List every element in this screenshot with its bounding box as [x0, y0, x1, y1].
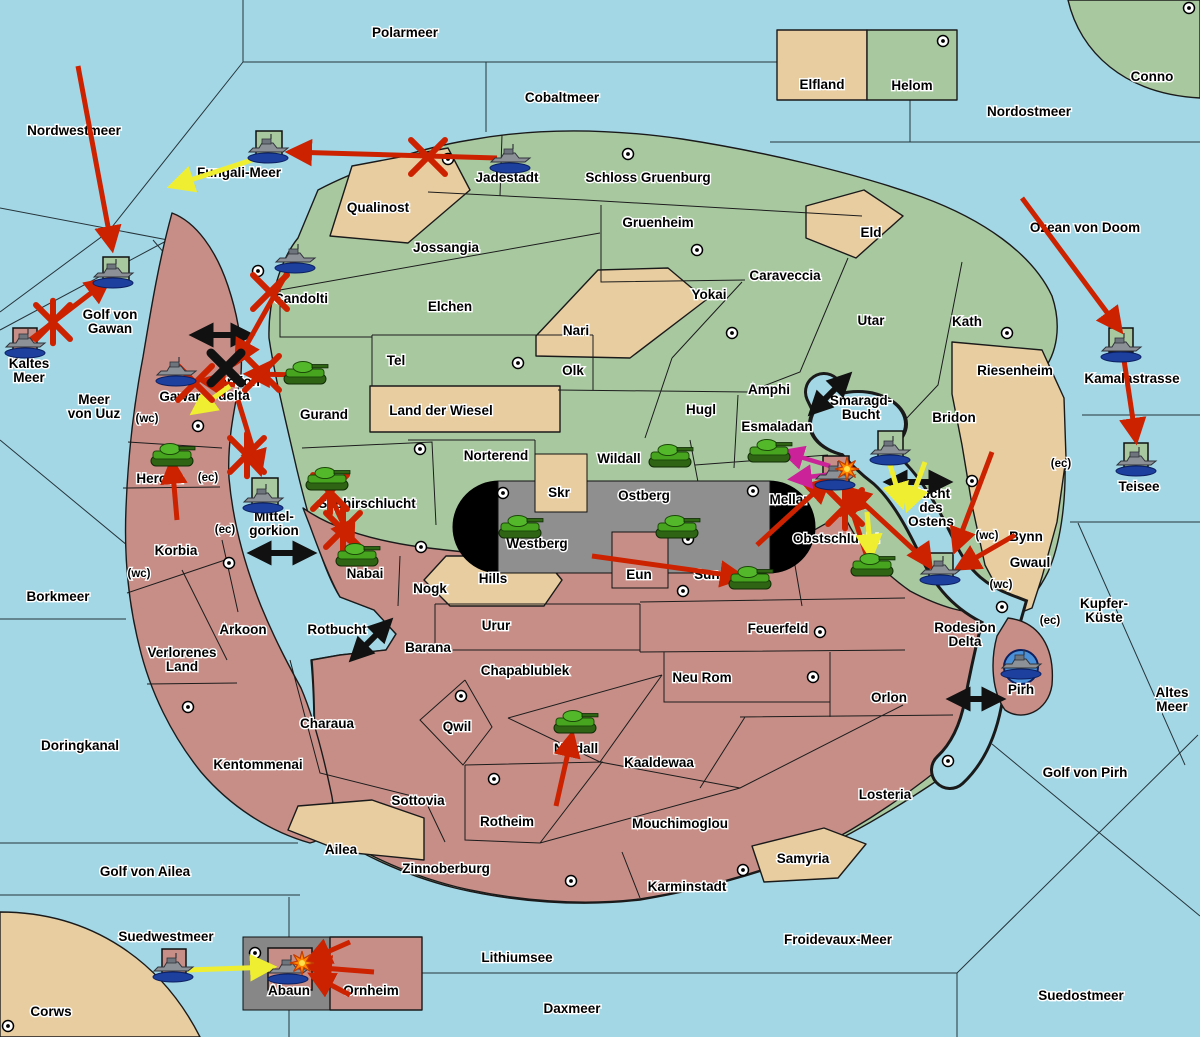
- supply-dot: [224, 558, 235, 569]
- territory-label[interactable]: Esmaladan: [741, 419, 812, 434]
- sea-label: Borkmeer: [26, 589, 90, 604]
- territory-label[interactable]: Land der Wiesel: [389, 403, 492, 418]
- sea-label: Golf von Ailea: [100, 864, 191, 879]
- territory-label[interactable]: Schloss Gruenburg: [585, 170, 710, 185]
- territory-label[interactable]: Helom: [891, 78, 932, 93]
- supply-dot: [250, 948, 261, 959]
- supply-dot: [193, 421, 204, 432]
- supply-dot: [513, 358, 524, 369]
- supply-dot: [1002, 328, 1013, 339]
- skr-square: [535, 454, 587, 512]
- coast-tag-label: (ec): [1040, 615, 1061, 627]
- supply-dot: [416, 542, 427, 553]
- territory-label[interactable]: Nabai: [347, 566, 384, 581]
- yellow-attack-arrow: [188, 967, 272, 970]
- territory-label[interactable]: Amphi: [748, 382, 790, 397]
- territory-label[interactable]: Abaun: [268, 983, 310, 998]
- territory-label[interactable]: Skr: [548, 485, 571, 500]
- supply-dot: [415, 444, 426, 455]
- territory-label[interactable]: Bridon: [932, 410, 976, 425]
- sea-label: Kupfer-Küste: [1080, 596, 1128, 625]
- territory-label[interactable]: Wildall: [597, 451, 640, 466]
- coast-tag-label: (ec): [215, 524, 236, 536]
- sea-label: AltesMeer: [1155, 685, 1188, 714]
- territory-label[interactable]: Ailea: [325, 842, 358, 857]
- territory-label[interactable]: Elchen: [428, 299, 472, 314]
- territory-label[interactable]: Zinnoberburg: [402, 861, 490, 876]
- territory-label[interactable]: Qwil: [443, 719, 472, 734]
- territory-label[interactable]: Ornheim: [343, 983, 399, 998]
- territory-label[interactable]: Karminstadt: [648, 879, 727, 894]
- supply-dot: [623, 149, 634, 160]
- coast-tag-label: (wc): [128, 568, 151, 580]
- territory-label[interactable]: Nari: [563, 323, 589, 338]
- sea-label: Doringkanal: [41, 738, 119, 753]
- sea-label: Rotbucht: [307, 622, 367, 637]
- territory-label[interactable]: Olk: [562, 363, 584, 378]
- supply-dot: [815, 627, 826, 638]
- coast-tag-label: (ec): [1051, 458, 1072, 470]
- sea-label: Nordostmeer: [987, 104, 1072, 119]
- territory-label[interactable]: Yokai: [691, 287, 726, 302]
- sea-label: Nordwestmeer: [27, 123, 122, 138]
- territory-label[interactable]: Kath: [952, 314, 982, 329]
- territory-label[interactable]: Corws: [30, 1004, 71, 1019]
- supply-dot: [489, 774, 500, 785]
- supply-dot: [808, 672, 819, 683]
- supply-dot: [183, 702, 194, 713]
- territory-label[interactable]: Arkoon: [219, 622, 266, 637]
- explosion-marker: [835, 457, 859, 481]
- territory-label[interactable]: Riesenheim: [977, 363, 1053, 378]
- territory-label[interactable]: Neu Rom: [672, 670, 731, 685]
- territory-label[interactable]: Urur: [482, 618, 511, 633]
- supply-dot: [3, 1021, 14, 1032]
- territory-label[interactable]: Gruenheim: [622, 215, 693, 230]
- supply-dot: [997, 602, 1008, 613]
- sea-label: Polarmeer: [372, 25, 439, 40]
- sea-label: KaltesMeer: [9, 356, 50, 385]
- supply-dot: [967, 476, 978, 487]
- territory-label[interactable]: Hugl: [686, 402, 716, 417]
- coast-tag-label: (ec): [198, 472, 219, 484]
- territory-label[interactable]: Barana: [405, 640, 451, 655]
- supply-dot: [1184, 3, 1195, 14]
- territory-label[interactable]: Pirh: [1008, 682, 1034, 697]
- territory-label[interactable]: Ostberg: [618, 488, 670, 503]
- territory-label[interactable]: Elfland: [799, 77, 844, 92]
- territory-label[interactable]: Heronn: [136, 471, 183, 486]
- territory-label[interactable]: Feuerfeld: [748, 621, 809, 636]
- territory-label[interactable]: Hills: [479, 571, 508, 586]
- supply-dot: [678, 586, 689, 597]
- supply-dot: [943, 756, 954, 767]
- territory-label[interactable]: Caraveccia: [749, 268, 821, 283]
- territory-label[interactable]: Sottovia: [391, 793, 445, 808]
- explosion-marker: [290, 951, 314, 975]
- territory-label[interactable]: Tel: [387, 353, 406, 368]
- coast-tag-label: (wc): [136, 413, 159, 425]
- coast-tag-label: (wc): [990, 579, 1013, 591]
- territory-label[interactable]: Gwaul: [1010, 555, 1051, 570]
- sea-label: Suedostmeer: [1038, 988, 1124, 1003]
- territory-label[interactable]: Losteria: [859, 787, 912, 802]
- coast-tag-label: (wc): [976, 530, 999, 542]
- territory-label[interactable]: Qualinost: [347, 200, 410, 215]
- territory-label[interactable]: Orlon: [871, 690, 907, 705]
- supply-dot: [566, 876, 577, 887]
- territory-label[interactable]: Kentommenai: [213, 757, 302, 772]
- war-map: PolarmeerNordwestmeerCobaltmeerNordostme…: [0, 0, 1200, 1037]
- territory-label[interactable]: Nogk: [413, 581, 447, 596]
- supply-dot: [498, 488, 509, 499]
- territory-label[interactable]: Jossangia: [413, 240, 480, 255]
- territory-label[interactable]: Nilldall: [554, 741, 598, 756]
- supply-dot: [738, 865, 749, 876]
- territory-label[interactable]: Korbia: [155, 543, 198, 558]
- territory-label[interactable]: Kaaldewaa: [624, 755, 694, 770]
- sea-label: Kamalastrasse: [1084, 371, 1180, 386]
- supply-dot: [456, 691, 467, 702]
- territory-label[interactable]: Utar: [857, 313, 885, 328]
- map-canvas: PolarmeerNordwestmeerCobaltmeerNordostme…: [0, 0, 1200, 1037]
- territory-label[interactable]: Chapablublek: [481, 663, 570, 678]
- territory-label[interactable]: Eun: [626, 567, 652, 582]
- territory-label[interactable]: Samyria: [777, 851, 830, 866]
- territory-label[interactable]: Norterend: [464, 448, 529, 463]
- sea-label: Teisee: [1118, 479, 1160, 494]
- territory-label[interactable]: Rotheim: [480, 814, 534, 829]
- supply-dot: [727, 328, 738, 339]
- sea-label: Suedwestmeer: [118, 929, 214, 944]
- supply-dot: [692, 245, 703, 256]
- supply-dot: [938, 36, 949, 47]
- sea-label: Froidevaux-Meer: [784, 932, 893, 947]
- sea-label: Golf vonGawan: [83, 307, 138, 336]
- territory-label[interactable]: Eld: [860, 225, 881, 240]
- supply-dot: [748, 486, 759, 497]
- territory-label[interactable]: Gurand: [300, 407, 348, 422]
- sea-label: Lithiumsee: [481, 950, 553, 965]
- territory-label[interactable]: Charaua: [300, 716, 355, 731]
- territory-label[interactable]: Mouchimoglou: [632, 816, 728, 831]
- sea-label: Cobaltmeer: [525, 90, 600, 105]
- territory-label[interactable]: Conno: [1131, 69, 1174, 84]
- sea-label: Golf von Pirh: [1043, 765, 1128, 780]
- sea-label: Daxmeer: [543, 1001, 601, 1016]
